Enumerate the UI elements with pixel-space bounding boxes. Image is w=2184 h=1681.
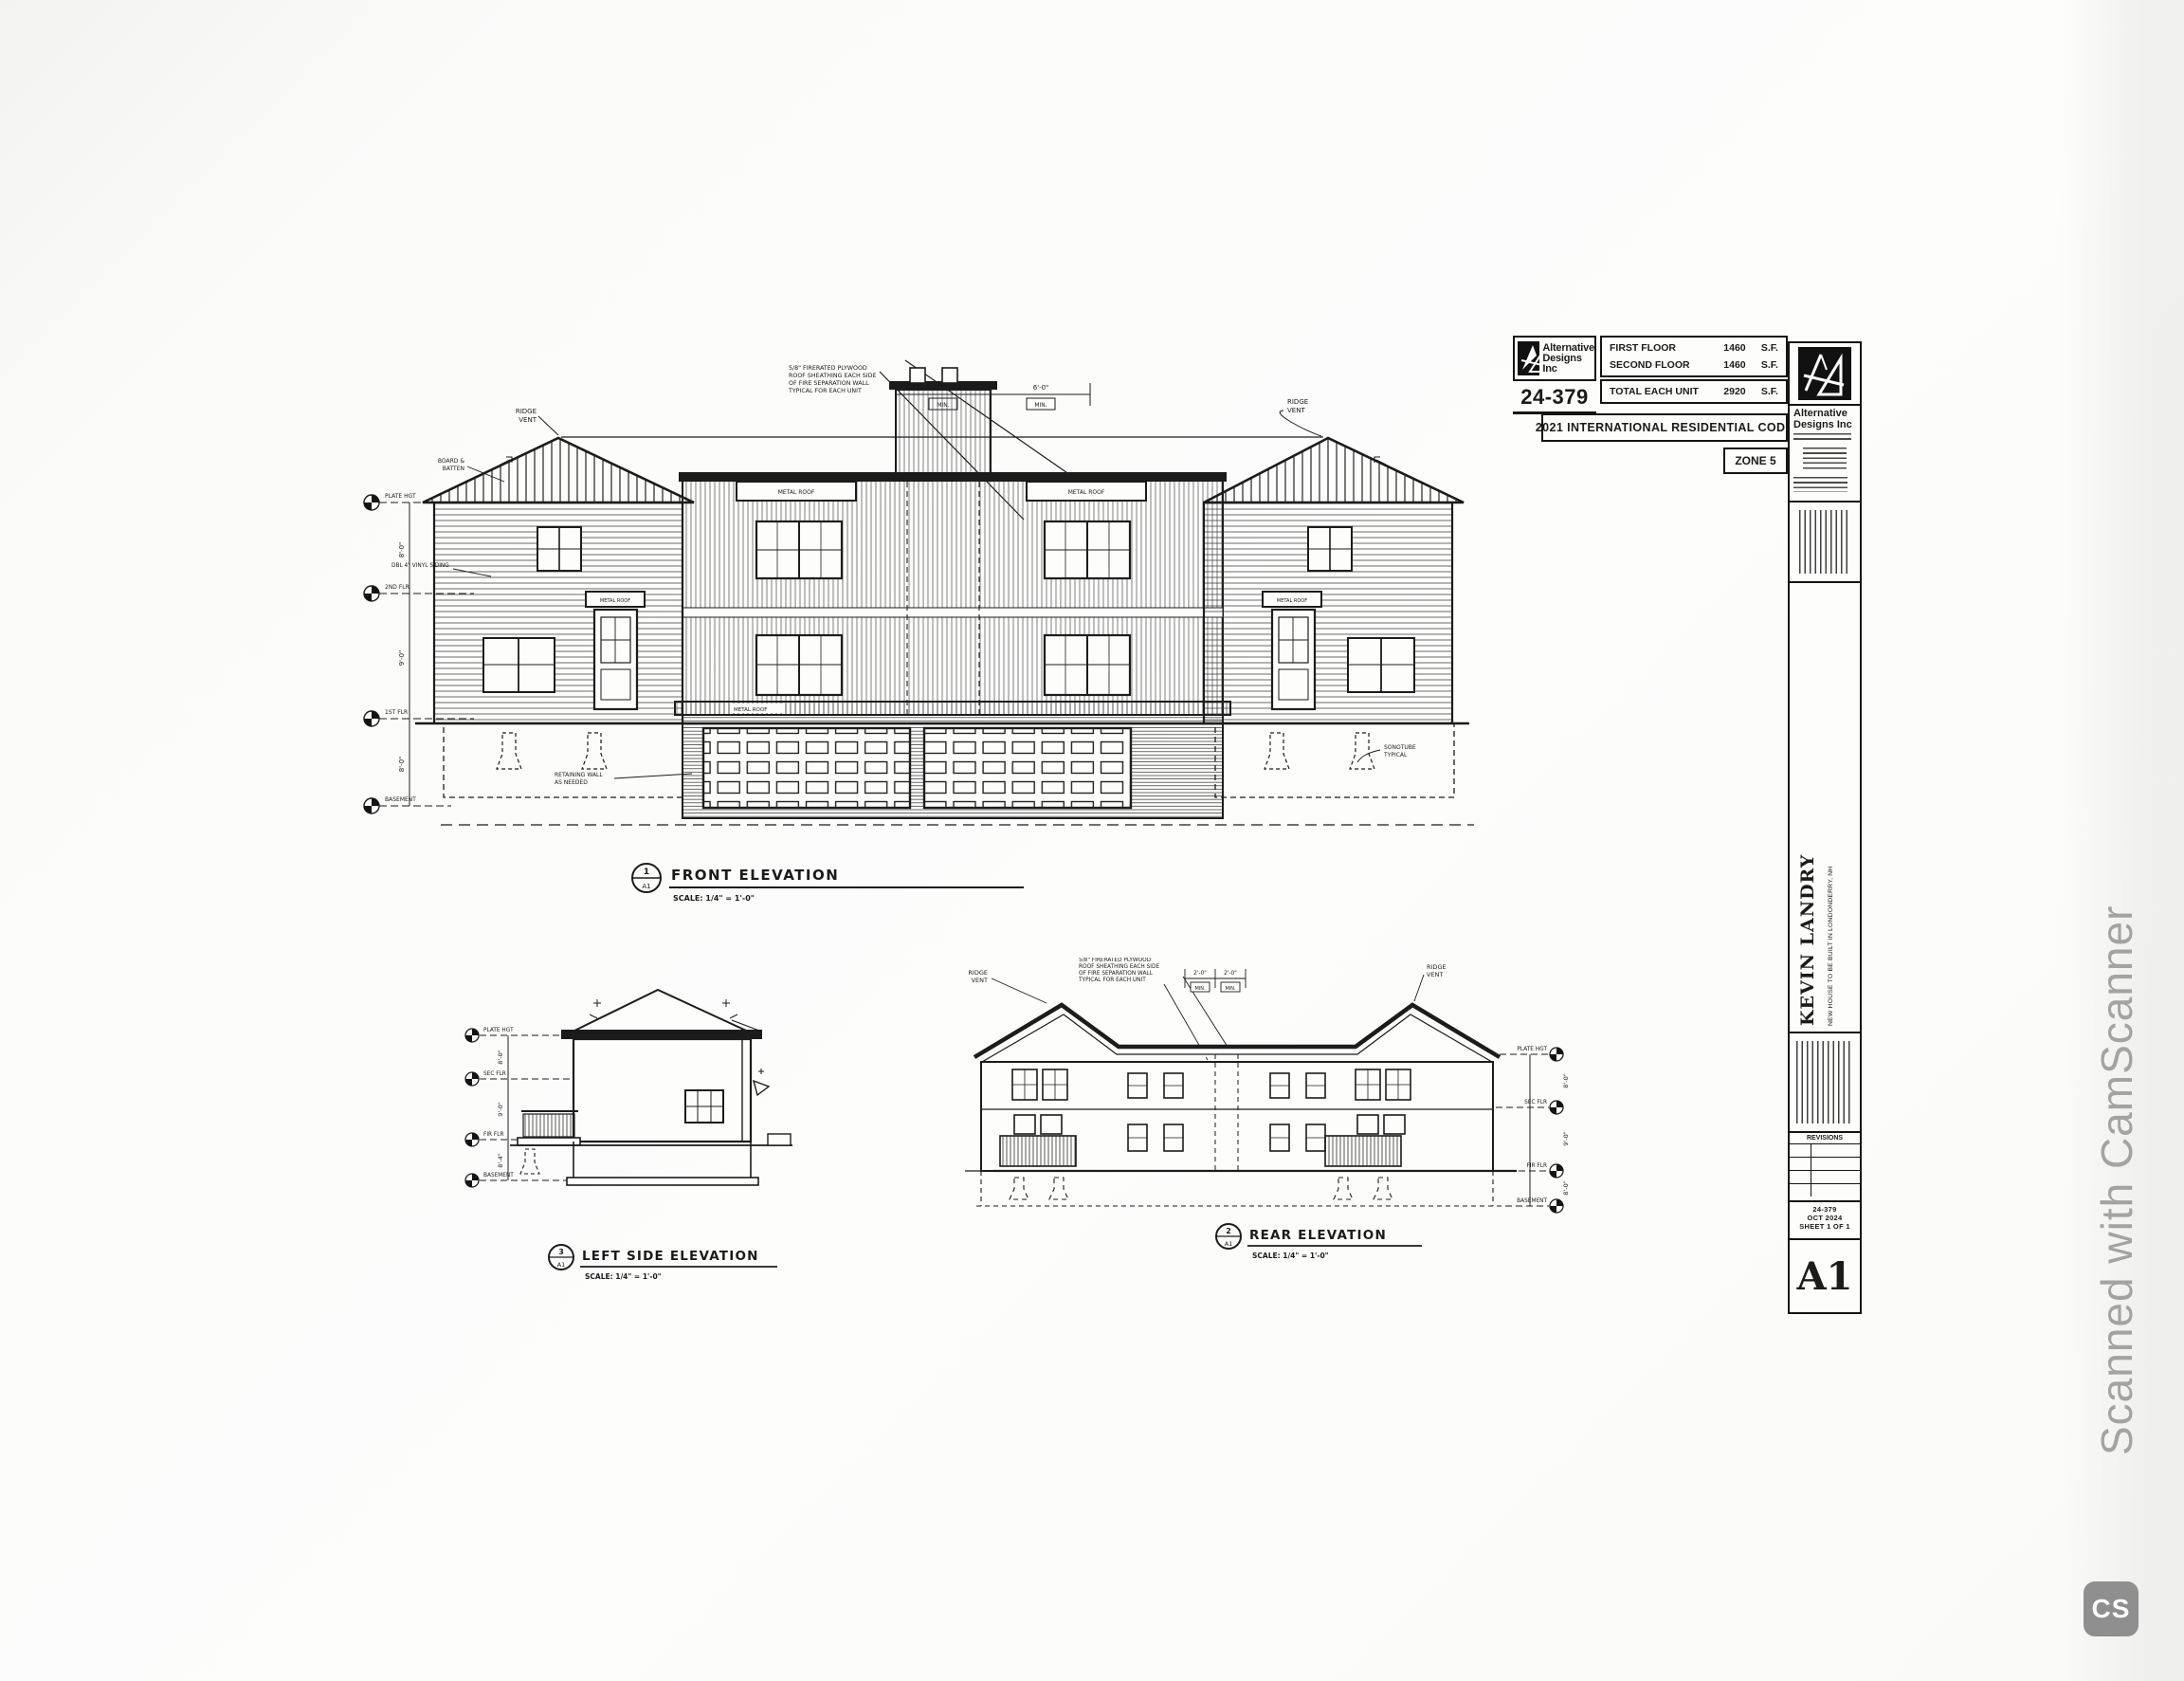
window bbox=[1348, 638, 1414, 692]
area-value: 2920 bbox=[1723, 386, 1745, 397]
svg-text:VENT: VENT bbox=[519, 416, 537, 424]
svg-text:VENT: VENT bbox=[1287, 407, 1305, 414]
area-label: TOTAL EACH UNIT bbox=[1610, 386, 1708, 397]
right-gable-unit: METAL ROOF bbox=[1204, 438, 1464, 723]
firm-logo-icon bbox=[1798, 347, 1851, 400]
metal-roof-label: METAL ROOF bbox=[1277, 598, 1307, 604]
level-label: PLATE HGT bbox=[483, 1028, 514, 1033]
camscanner-badge: CS bbox=[2084, 1581, 2138, 1636]
level-label: FIR FLR bbox=[483, 1132, 504, 1138]
firm-name-line1: Alternative bbox=[1542, 343, 1594, 354]
deck-railing bbox=[523, 1114, 574, 1137]
svg-text:2'-0": 2'-0" bbox=[1224, 971, 1237, 977]
firm-phone-smudge bbox=[1793, 477, 1847, 492]
firm-name-line1: Alternative bbox=[1793, 409, 1856, 420]
svg-text:MIN.: MIN. bbox=[1194, 986, 1206, 992]
area-unit: S.F. bbox=[1761, 359, 1778, 371]
metal-roof-label: METAL ROOF bbox=[600, 598, 630, 604]
ridge-vent-label: RIDGE bbox=[968, 969, 988, 977]
dim-text: 9'-0" bbox=[398, 650, 406, 667]
titleblock-revisions-section: REVISIONS bbox=[1790, 1133, 1860, 1202]
svg-text:5/8" FIRERATED PLYWOOD: 5/8" FIRERATED PLYWOOD bbox=[789, 365, 867, 372]
side-elevation-title: 3 A1 LEFT SIDE ELEVATION SCALE: 1/4" = 1… bbox=[549, 1245, 777, 1281]
front-elevation-title: 1 A1 FRONT ELEVATION SCALE: 1/4" = 1'-0" bbox=[632, 864, 1024, 903]
metal-roof-hood: METAL ROOF bbox=[1027, 482, 1146, 501]
scale-note: SCALE: 1/4" = 1'-0" bbox=[1252, 1252, 1329, 1260]
retaining-wall-note: RETAINING WALL bbox=[555, 772, 603, 778]
left-gable-unit: METAL ROOF BOARD & BATTEN bbox=[423, 438, 694, 723]
dim-text: 8'-4" bbox=[497, 1153, 504, 1167]
board-batten-label: BOARD & bbox=[438, 458, 464, 465]
center-section: METAL ROOF METAL ROOF bbox=[675, 368, 1230, 818]
area-table-upper: FIRST FLOOR 1460 S.F. SECOND FLOOR 1460 … bbox=[1600, 336, 1788, 377]
titleblock-notes2-section bbox=[1790, 1033, 1860, 1133]
issue-date: OCT 2024 bbox=[1790, 1214, 1860, 1222]
firm-contact-smudge bbox=[1793, 433, 1851, 443]
titleblock-notes-section bbox=[1790, 502, 1860, 583]
svg-text:METAL ROOF: METAL ROOF bbox=[778, 489, 815, 496]
deck-pier bbox=[520, 1149, 539, 1174]
svg-text:ROOF SHEATHING EACH SIDE: ROOF SHEATHING EACH SIDE bbox=[1079, 964, 1159, 970]
svg-text:LEFT SIDE ELEVATION: LEFT SIDE ELEVATION bbox=[582, 1249, 759, 1264]
metal-roof-hood: METAL ROOF bbox=[737, 482, 856, 501]
svg-text:MIN.: MIN. bbox=[1225, 986, 1236, 992]
svg-text:A1: A1 bbox=[642, 883, 650, 890]
window bbox=[685, 1090, 723, 1123]
window bbox=[483, 638, 555, 692]
foundation bbox=[567, 1178, 758, 1185]
svg-text:TYPICAL: TYPICAL bbox=[1383, 752, 1408, 758]
entry-door bbox=[586, 592, 645, 709]
svg-text:REAR ELEVATION: REAR ELEVATION bbox=[1249, 1228, 1387, 1243]
svg-text:A1: A1 bbox=[1225, 1240, 1233, 1248]
left-side-elevation-drawing: PLATE HGT SEC FLR FIR FLR BASEMENT 8'-0"… bbox=[455, 977, 834, 1318]
svg-text:5/8" FIRERATED PLYWOOD: 5/8" FIRERATED PLYWOOD bbox=[1079, 958, 1152, 963]
firm-address-smudge bbox=[1803, 448, 1847, 472]
svg-text:BATTEN: BATTEN bbox=[443, 466, 464, 472]
sheet-number: A1 bbox=[1790, 1240, 1860, 1312]
scale-note: SCALE: 1/4" = 1'-0" bbox=[585, 1272, 662, 1281]
area-label: FIRST FLOOR bbox=[1610, 342, 1708, 354]
scanned-blueprint-page: RIDGE VENT RIDGE VENT 5/8" FIRERATED PLY… bbox=[0, 0, 2184, 1681]
level-label: SEC FLR bbox=[483, 1071, 506, 1077]
area-value: 1460 bbox=[1723, 342, 1745, 354]
svg-text:OF FIRE SEPARATION WALL: OF FIRE SEPARATION WALL bbox=[789, 380, 869, 387]
camscanner-badge-label: CS bbox=[2092, 1594, 2131, 1624]
level-label: FIR FLR bbox=[1526, 1163, 1547, 1169]
vinyl-siding-note: DBL 4" VINYL SIDING bbox=[391, 563, 449, 569]
entry-door bbox=[1263, 592, 1321, 709]
titleblock-firm-section: Alternative Designs Inc bbox=[1790, 406, 1860, 502]
side-building bbox=[510, 990, 792, 1185]
dim-text: 8'-0" bbox=[1562, 1073, 1570, 1087]
level-label: PLATE HGT bbox=[385, 493, 416, 500]
camscanner-watermark-text: Scanned with CamScanner bbox=[2091, 787, 2148, 1574]
zone-badge: ZONE 5 bbox=[1723, 448, 1788, 474]
dim-text: 8'-0" bbox=[497, 1050, 504, 1064]
svg-text:3: 3 bbox=[558, 1248, 564, 1256]
titleblock-project-section: KEVIN LANDRY NEW HOUSE TO BE BUILT IN LO… bbox=[1790, 583, 1860, 1033]
firm-logo-box: Alternative Designs Inc bbox=[1513, 336, 1596, 381]
svg-text:FRONT ELEVATION: FRONT ELEVATION bbox=[671, 867, 839, 884]
window bbox=[1045, 635, 1130, 695]
svg-text:VENT: VENT bbox=[1427, 971, 1443, 978]
level-label: BASEMENT bbox=[483, 1173, 514, 1179]
svg-text:ROOF SHEATHING EACH SIDE: ROOF SHEATHING EACH SIDE bbox=[789, 373, 876, 379]
client-name: KEVIN LANDRY bbox=[1797, 798, 1818, 1026]
svg-text:METAL ROOF: METAL ROOF bbox=[1068, 489, 1105, 496]
level-label: 2ND FLR bbox=[385, 584, 409, 591]
door-hood-edge bbox=[754, 1081, 769, 1095]
step bbox=[768, 1134, 791, 1145]
svg-text:OF FIRE SEPARATION WALL: OF FIRE SEPARATION WALL bbox=[1079, 971, 1154, 977]
window bbox=[537, 527, 581, 571]
porch-railing bbox=[1000, 1136, 1076, 1166]
area-value: 1460 bbox=[1723, 359, 1745, 371]
roof-vent-mark bbox=[722, 999, 737, 1018]
titleblock-logo-section bbox=[1790, 343, 1860, 406]
rear-elevation-title: 2 A1 REAR ELEVATION SCALE: 1/4" = 1'-0" bbox=[1216, 1224, 1422, 1260]
dim-text: 8'-0" bbox=[398, 757, 406, 773]
level-label: BASEMENT bbox=[1517, 1198, 1547, 1204]
svg-text:AS NEEDED: AS NEEDED bbox=[555, 779, 588, 786]
revisions-header: REVISIONS bbox=[1790, 1133, 1860, 1144]
svg-text:2: 2 bbox=[1226, 1227, 1231, 1235]
rotated-notes-smudge bbox=[1796, 1041, 1852, 1124]
svg-text:VENT: VENT bbox=[972, 977, 988, 984]
ridge-vent-label: RIDGE bbox=[1287, 398, 1308, 406]
scale-note: SCALE: 1/4" = 1'-0" bbox=[673, 894, 755, 903]
window bbox=[756, 635, 842, 695]
titleblock-strip: Alternative Designs Inc KEVIN LANDRY NEW… bbox=[1788, 341, 1862, 1314]
project-description: NEW HOUSE TO BE BUILT IN LONDONDERRY, NH bbox=[1828, 798, 1834, 1026]
level-label: 1ST FLR bbox=[385, 709, 408, 716]
dim-text: 8'-0" bbox=[398, 542, 406, 558]
svg-text:A1: A1 bbox=[557, 1261, 566, 1269]
metal-roof-label: METAL ROOF bbox=[734, 707, 767, 713]
firm-logo-icon bbox=[1518, 341, 1539, 375]
firm-name-line2: Designs Inc bbox=[1793, 420, 1856, 431]
window bbox=[1308, 527, 1352, 571]
dim-text: 9'-0" bbox=[1562, 1131, 1570, 1145]
window bbox=[756, 521, 842, 578]
window bbox=[1045, 521, 1130, 578]
roof-vent-mark bbox=[590, 999, 601, 1018]
area-label: SECOND FLOOR bbox=[1610, 359, 1708, 371]
level-markers: PLATE HGT SEC FLR FIR FLR BASEMENT 8'-0"… bbox=[465, 1028, 573, 1187]
level-label: BASEMENT bbox=[385, 796, 416, 803]
dim-text: 9'-0" bbox=[497, 1102, 504, 1116]
rear-building bbox=[965, 1005, 1517, 1206]
rotated-notes-smudge bbox=[1799, 510, 1849, 573]
ridge-vent-label: RIDGE bbox=[516, 408, 537, 415]
area-unit: S.F. bbox=[1761, 386, 1778, 397]
area-unit: S.F. bbox=[1761, 342, 1778, 354]
area-table-total: TOTAL EACH UNIT 2920 S.F. bbox=[1600, 379, 1788, 404]
svg-text:6'-0": 6'-0" bbox=[1033, 384, 1049, 392]
project-info-block: Alternative Designs Inc 24-379 FIRST FLO… bbox=[1513, 334, 1790, 478]
building-code-note: 2021 INTERNATIONAL RESIDENTIAL CODE bbox=[1541, 413, 1788, 442]
svg-text:1: 1 bbox=[644, 868, 649, 877]
svg-text:TYPICAL FOR EACH UNIT: TYPICAL FOR EACH UNIT bbox=[788, 388, 862, 394]
rear-elevation-drawing: 5/8" FIRERATED PLYWOOD ROOF SHEATHING EA… bbox=[948, 948, 1574, 1266]
job-number: 24-379 bbox=[1790, 1205, 1860, 1214]
sheet-count: SHEET 1 OF 1 bbox=[1790, 1222, 1860, 1231]
firm-name-line2: Designs Inc bbox=[1542, 354, 1594, 375]
dim-text: 8'-0" bbox=[1562, 1180, 1570, 1195]
sonotube-note: SONOTUBE bbox=[1384, 744, 1416, 751]
front-elevation-drawing: RIDGE VENT RIDGE VENT 5/8" FIRERATED PLY… bbox=[360, 339, 1526, 932]
svg-text:2'-0": 2'-0" bbox=[1193, 971, 1207, 977]
svg-text:TYPICAL FOR EACH UNIT: TYPICAL FOR EACH UNIT bbox=[1078, 978, 1146, 983]
project-number: 24-379 bbox=[1513, 383, 1596, 414]
titleblock-job-section: 24-379 OCT 2024 SHEET 1 OF 1 bbox=[1790, 1202, 1860, 1240]
level-label: SEC FLR bbox=[1524, 1100, 1547, 1105]
svg-text:MIN.: MIN. bbox=[1034, 402, 1046, 409]
level-markers: PLATE HGT SEC FLR FIR FLR BASEMENT 8'-0"… bbox=[1496, 1047, 1570, 1213]
ridge-vent-label: RIDGE bbox=[1427, 963, 1447, 971]
level-label: PLATE HGT bbox=[1517, 1047, 1547, 1052]
porch-railing bbox=[1325, 1136, 1401, 1166]
